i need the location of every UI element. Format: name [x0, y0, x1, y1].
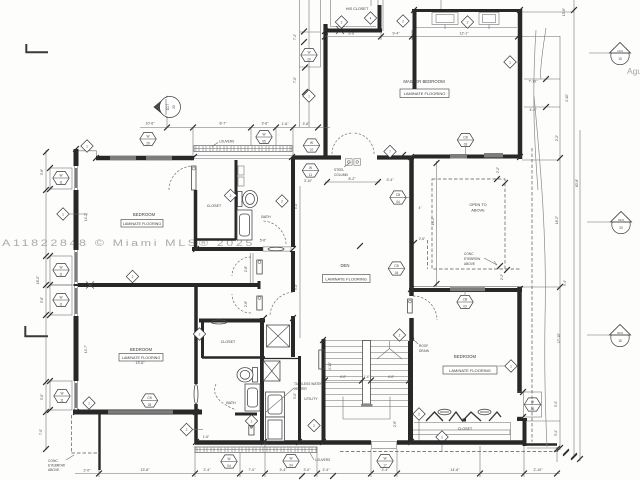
svg-text:W: W [383, 457, 386, 461]
svg-text:10'-6": 10'-6" [146, 122, 156, 126]
svg-text:2'-6": 2'-6" [419, 237, 425, 241]
svg-text:2'-8": 2'-8" [244, 266, 248, 272]
svg-text:04: 04 [289, 464, 293, 468]
svg-text:BEDROOM: BEDROOM [133, 212, 156, 217]
svg-text:ABOVE: ABOVE [471, 208, 485, 213]
svg-text:8'-6": 8'-6" [349, 32, 357, 36]
svg-text:2: 2 [281, 200, 283, 204]
svg-text:W: W [309, 166, 312, 170]
svg-text:15: 15 [618, 57, 622, 61]
svg-text:11: 11 [309, 173, 313, 177]
svg-text:CB: CB [463, 136, 467, 140]
svg-text:11: 11 [60, 399, 64, 403]
svg-text:14'-7": 14'-7" [84, 345, 88, 353]
svg-text:CB: CB [396, 193, 400, 197]
svg-text:1: 1 [510, 365, 512, 369]
svg-text:1: 1 [509, 61, 511, 65]
svg-text:1'-4": 1'-4" [363, 375, 369, 379]
svg-text:18'-0": 18'-0" [36, 276, 40, 284]
svg-text:4'-0": 4'-0" [388, 375, 394, 379]
svg-text:3'-8": 3'-8" [40, 297, 44, 303]
svg-text:14'-6": 14'-6" [451, 468, 461, 472]
svg-text:W: W [531, 400, 534, 404]
svg-text:ABOVE: ABOVE [464, 262, 475, 266]
svg-text:1: 1 [308, 95, 310, 99]
svg-text:17'-10": 17'-10" [557, 333, 561, 343]
svg-text:13'-6": 13'-6" [141, 468, 151, 472]
svg-text:14'-2": 14'-2" [84, 213, 88, 221]
svg-text:3'-6": 3'-6" [262, 122, 270, 126]
svg-text:LAMINATE FLOORING: LAMINATE FLOORING [325, 276, 367, 281]
svg-text:1: 1 [86, 145, 88, 149]
svg-text:W: W [307, 51, 310, 55]
svg-text:05: 05 [262, 140, 266, 144]
svg-text:2'-4": 2'-4" [323, 468, 331, 472]
svg-text:CB: CB [463, 298, 467, 302]
svg-text:20: 20 [172, 105, 176, 109]
svg-text:2'-8": 2'-8" [244, 301, 248, 307]
svg-text:7: 7 [389, 150, 391, 154]
svg-text:05: 05 [148, 403, 152, 407]
svg-text:4'-0": 4'-0" [530, 108, 538, 112]
svg-text:DRAIN: DRAIN [419, 349, 430, 353]
svg-text:4'-10": 4'-10" [328, 362, 332, 370]
svg-text:BEDROOM: BEDROOM [454, 354, 477, 359]
svg-text:LAMINATE FLOORING: LAMINATE FLOORING [449, 368, 491, 373]
svg-text:11: 11 [59, 181, 63, 185]
svg-text:ROOF: ROOF [419, 344, 428, 348]
svg-text:04: 04 [395, 271, 399, 275]
svg-text:1'-6": 1'-6" [282, 122, 290, 126]
svg-text:07: 07 [310, 148, 314, 152]
svg-text:LOUVERS: LOUVERS [219, 140, 234, 144]
svg-text:3'-0": 3'-0" [293, 393, 297, 399]
svg-text:EYEBROW: EYEBROW [464, 257, 480, 261]
svg-text:W: W [59, 296, 62, 300]
svg-text:03: 03 [464, 143, 468, 147]
svg-text:1: 1 [441, 436, 443, 440]
svg-text:1'-6": 1'-6" [203, 435, 209, 439]
svg-text:11: 11 [59, 303, 63, 307]
svg-text:7'-0": 7'-0" [39, 429, 43, 435]
svg-text:9'-4": 9'-4" [393, 32, 401, 36]
svg-text:8'-7": 8'-7" [220, 122, 228, 126]
svg-text:15: 15 [618, 339, 622, 343]
svg-text:BEDROOM: BEDROOM [130, 347, 153, 352]
svg-text:CB: CB [147, 396, 151, 400]
svg-text:W: W [146, 135, 149, 139]
svg-text:HIS CLOSET: HIS CLOSET [346, 7, 369, 11]
svg-text:3'-10": 3'-10" [304, 179, 312, 183]
svg-text:DEN: DEN [340, 263, 349, 268]
svg-text:MASTER BEDROOM: MASTER BEDROOM [403, 79, 445, 84]
svg-text:04: 04 [227, 464, 231, 468]
svg-text:4": 4" [419, 206, 422, 210]
svg-text:03: 03 [463, 305, 467, 309]
svg-text:3'-4": 3'-4" [387, 178, 395, 182]
svg-text:2: 2 [199, 333, 201, 337]
svg-text:CB: CB [394, 264, 398, 268]
svg-text:5'-6": 5'-6" [260, 239, 266, 243]
svg-text:2'-0": 2'-0" [84, 469, 92, 473]
svg-text:2: 2 [402, 20, 404, 24]
svg-text:10-7: 10-7 [166, 104, 170, 111]
svg-text:3'-4": 3'-4" [563, 280, 567, 286]
svg-text:2: 2 [230, 194, 232, 198]
svg-text:2: 2 [399, 334, 401, 338]
svg-text:17: 17 [383, 464, 387, 468]
svg-text:3'-6": 3'-6" [303, 122, 311, 126]
svg-text:1: 1 [88, 402, 90, 406]
svg-text:3'-4": 3'-4" [382, 468, 390, 472]
svg-text:10-9: 10-9 [617, 49, 623, 53]
svg-text:COLUMN: COLUMN [334, 173, 349, 177]
svg-text:11: 11 [59, 273, 63, 277]
svg-text:3'-4": 3'-4" [554, 401, 558, 407]
svg-text:90-9: 90-9 [617, 331, 623, 335]
svg-text:7'-0": 7'-0" [293, 77, 297, 83]
svg-text:LAMINATE FLOORING: LAMINATE FLOORING [404, 91, 446, 96]
svg-text:3'-8": 3'-8" [40, 169, 44, 175]
svg-text:14'-2": 14'-2" [431, 217, 435, 225]
svg-text:W: W [227, 457, 230, 461]
svg-text:1: 1 [62, 213, 64, 217]
svg-text:W: W [60, 392, 63, 396]
svg-text:2: 2 [418, 413, 420, 417]
svg-text:2'-2": 2'-2" [555, 135, 559, 141]
svg-text:STEEL: STEEL [334, 168, 344, 172]
svg-text:W: W [59, 174, 62, 178]
svg-text:2'-2": 2'-2" [500, 274, 504, 280]
svg-text:ABOVE: ABOVE [48, 468, 60, 472]
svg-text:16: 16 [531, 407, 535, 411]
svg-text:2: 2 [467, 21, 469, 25]
svg-text:BATH: BATH [261, 215, 271, 219]
svg-text:EYEBROW: EYEBROW [48, 464, 66, 468]
svg-text:Agu: Agu [627, 66, 640, 76]
svg-text:20: 20 [619, 226, 623, 230]
svg-text:W: W [262, 133, 265, 137]
svg-text:2'-10": 2'-10" [534, 468, 544, 472]
svg-text:CLOSET: CLOSET [207, 204, 222, 208]
svg-text:2'-2": 2'-2" [496, 167, 500, 173]
svg-text:2: 2 [341, 21, 343, 25]
svg-text:29: 29 [146, 142, 150, 146]
svg-text:BATH: BATH [226, 401, 236, 405]
svg-text:12'-1": 12'-1" [460, 32, 470, 36]
svg-text:16'-2": 16'-2" [555, 216, 559, 224]
svg-text:3'-0": 3'-0" [304, 468, 312, 472]
svg-text:8'-2": 8'-2" [349, 177, 357, 181]
svg-text:2: 2 [313, 424, 315, 428]
svg-text:7'-10": 7'-10" [529, 80, 539, 84]
svg-text:OPEN TO: OPEN TO [469, 202, 486, 207]
svg-text:UTILITY: UTILITY [304, 397, 318, 401]
svg-text:CONC.: CONC. [48, 459, 59, 463]
svg-text:W: W [59, 266, 62, 270]
svg-text:2'-8": 2'-8" [393, 421, 397, 427]
svg-text:60'-8": 60'-8" [575, 179, 579, 187]
svg-text:LOUVERS: LOUVERS [315, 458, 330, 462]
svg-text:7'-4": 7'-4" [293, 34, 297, 40]
svg-text:CONC: CONC [464, 252, 474, 256]
svg-text:3'-4": 3'-4" [280, 468, 288, 472]
svg-text:13'-6": 13'-6" [136, 361, 146, 365]
svg-text:3'-0": 3'-0" [40, 394, 44, 400]
svg-text:2: 2 [186, 428, 188, 432]
svg-text:7'-0": 7'-0" [249, 468, 257, 472]
svg-text:CLOSET: CLOSET [458, 427, 473, 431]
svg-text:LAMINATE FLOORING: LAMINATE FLOORING [123, 222, 162, 226]
svg-text:2: 2 [132, 275, 134, 279]
svg-text:04: 04 [396, 200, 400, 204]
svg-text:CLOSET: CLOSET [221, 340, 236, 344]
svg-text:4'-10": 4'-10" [565, 94, 569, 102]
svg-text:W: W [310, 141, 313, 145]
svg-text:20: 20 [307, 58, 311, 62]
svg-text:1: 1 [251, 420, 253, 424]
svg-text:LAMINATE FLOORING: LAMINATE FLOORING [122, 356, 161, 360]
svg-text:2'-4": 2'-4" [204, 468, 212, 472]
svg-text:3'-4": 3'-4" [554, 430, 558, 436]
svg-text:90-9: 90-9 [618, 218, 624, 222]
svg-text:W: W [289, 457, 292, 461]
svg-text:4'-0": 4'-0" [340, 375, 346, 379]
svg-text:4: 4 [370, 17, 372, 21]
